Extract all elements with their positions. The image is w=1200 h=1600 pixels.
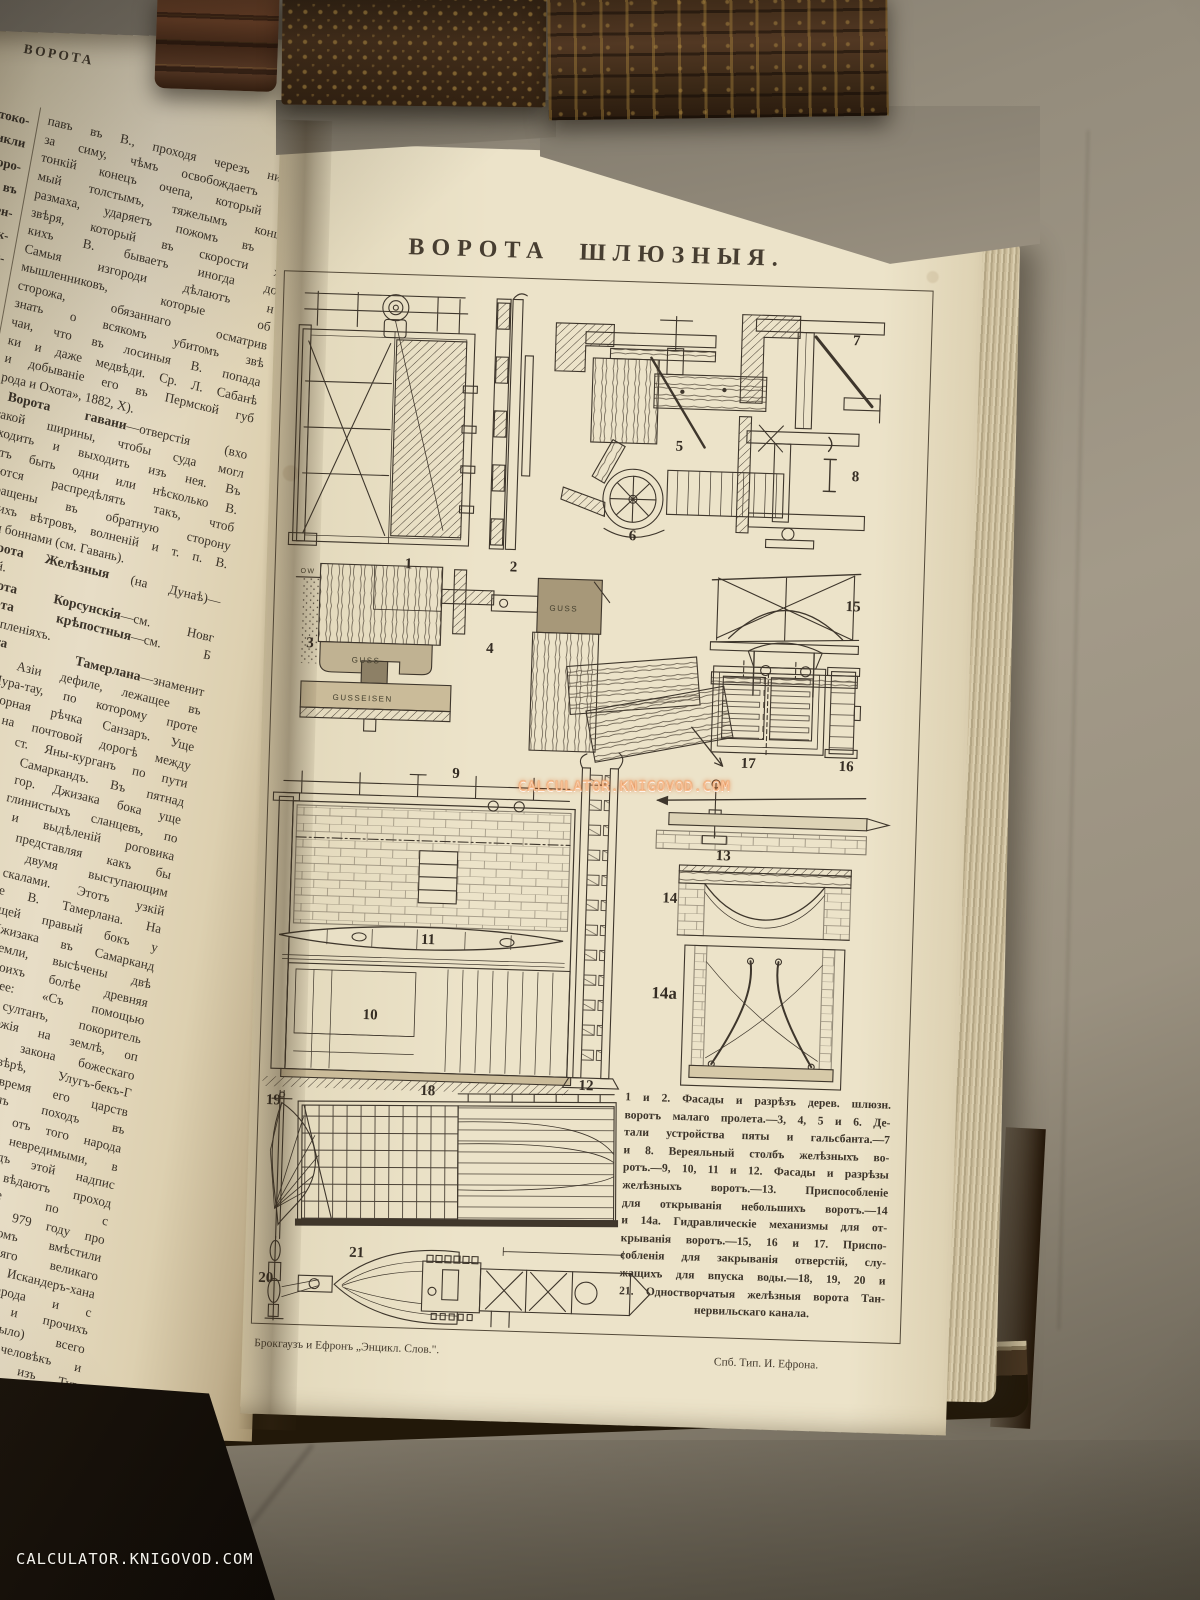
label-21: 21	[349, 1245, 364, 1261]
figure-5-heel-detail	[553, 313, 769, 450]
figure-2-gate-section	[489, 293, 535, 550]
fabric-crease	[1057, 130, 1089, 1330]
label-14: 14	[662, 890, 678, 906]
figure-14-hydraulic-section	[677, 865, 851, 940]
label-20: 20	[258, 1270, 273, 1286]
label-2: 2	[509, 559, 517, 575]
label-13: 13	[716, 848, 731, 864]
annotation-gusseisen: GUSSEISEN	[332, 693, 392, 704]
annotation-guss: GUSS	[352, 656, 381, 666]
figure-7-heelpost-top	[739, 315, 884, 431]
plate-caption: 1 и 2. Фасады и разрѣзъ дерев. шлюзн.вор…	[618, 1088, 891, 1325]
label-4: 4	[486, 641, 494, 657]
background-book-2	[281, 0, 546, 107]
label-10: 10	[362, 1007, 377, 1023]
label-5: 5	[675, 439, 683, 455]
figure-18-tancarville-elevation	[295, 1093, 618, 1227]
running-title: ВОРОТА	[22, 41, 95, 69]
figure-8-heelpost-bottom	[736, 417, 868, 551]
annotation-ow: OW	[300, 568, 315, 575]
background-book-1	[154, 0, 279, 92]
label-16: 16	[838, 759, 854, 775]
label-1: 1	[405, 556, 413, 572]
label-12: 12	[578, 1078, 593, 1094]
label-18: 18	[420, 1083, 435, 1099]
watermark-center: CALCULATOR.KNIGOVOD.COM	[518, 779, 730, 795]
label-3: 3	[306, 635, 314, 651]
plate-title: ВОРОТА ШЛЮЗНЫЯ.	[306, 231, 887, 276]
figure-1-gate-elevation	[288, 291, 480, 551]
left-page-text: токо-никлигоро-ь вълен-унк-раи-зрѣ-тоНа-…	[0, 90, 291, 169]
figure-3-heel-bearing	[292, 563, 455, 734]
imprint-publisher: Брокгаузъ и Ефронъ „Энцикл. Слов.".	[254, 1337, 439, 1356]
label-9: 9	[452, 766, 460, 782]
label-19: 19	[266, 1092, 281, 1108]
label-15: 15	[845, 599, 860, 615]
label-8: 8	[852, 469, 860, 485]
figure-4-collar-detail	[437, 569, 738, 766]
imprint-printer: Спб. Тип. И. Ефрона.	[714, 1356, 819, 1371]
label-14a: 14a	[651, 983, 678, 1003]
annotation-guss-2: GUSS	[549, 604, 578, 614]
photo-of-open-book: ВОРОТА токо-никлигоро-ь вълен-унк-раи-зр…	[0, 0, 1200, 1600]
label-11: 11	[421, 932, 436, 948]
background-book-3	[547, 0, 889, 120]
figure-21-gate-plan	[281, 1241, 651, 1335]
label-6: 6	[629, 528, 637, 544]
label-17: 17	[740, 756, 756, 772]
plate-frame: 1 2 3 4 5 6 7 8 9 10 11 12 13 14 14a 15	[251, 270, 934, 1344]
watermark-bottom: CALCULATOR.KNIGOVOD.COM	[16, 1550, 254, 1568]
label-7: 7	[853, 333, 861, 349]
figure-12-side-section	[562, 752, 629, 1090]
figure-14a-hydraulic-chamber	[681, 945, 845, 1090]
